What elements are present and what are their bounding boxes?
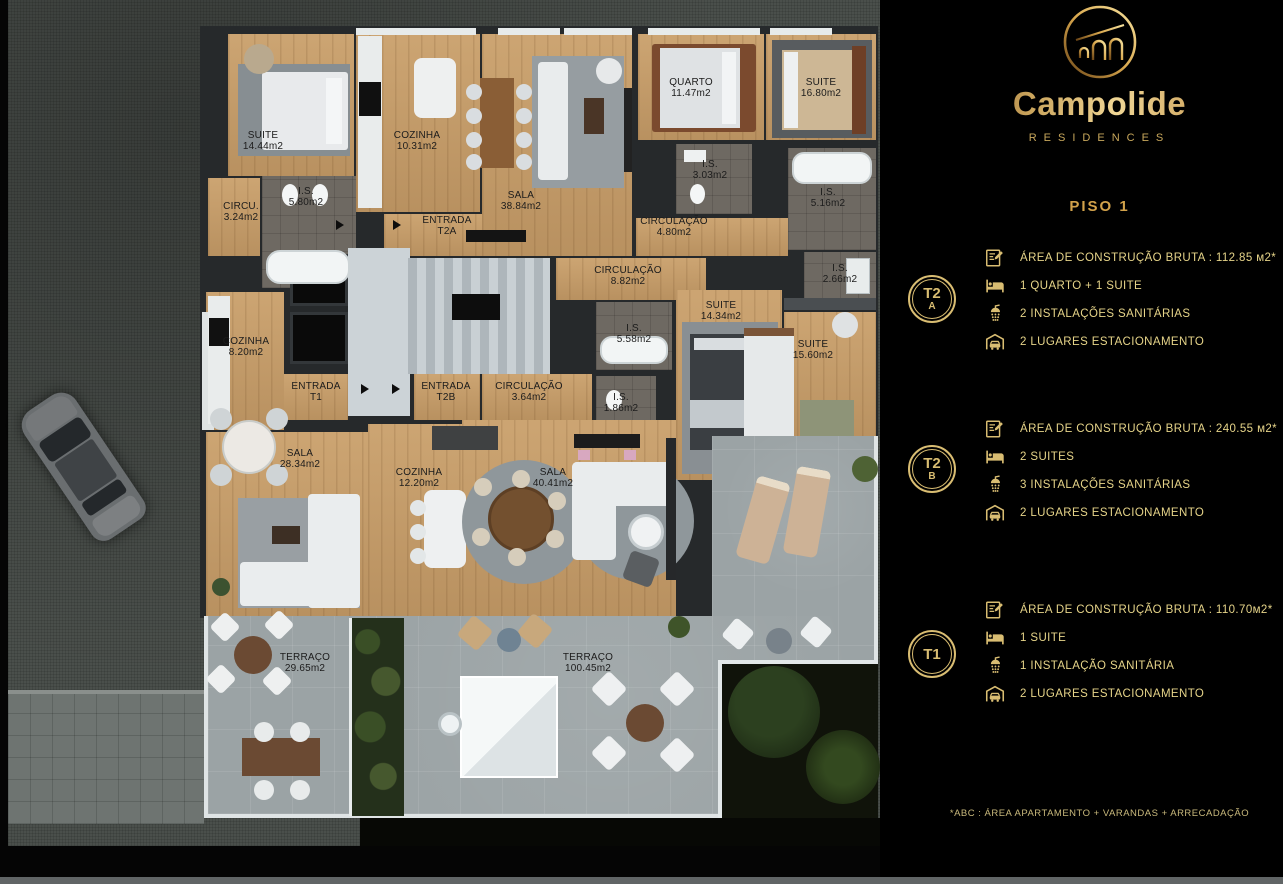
room-label: I.S.5.58m2 (617, 323, 652, 345)
unit-badge-t2b: T2 B (908, 445, 956, 493)
spec-parking: 2 LUGARES ESTACIONAMENTO (1020, 336, 1204, 348)
bed-icon (984, 275, 1006, 297)
kitchen-counter (358, 36, 382, 208)
hedge (352, 618, 404, 816)
garage-icon (984, 502, 1006, 524)
room-label: ENTRADAT2A (422, 215, 471, 237)
room-label: CIRCULAÇÃO8.82m2 (594, 265, 662, 287)
shower-icon (984, 474, 1006, 496)
unit-block-t2b: T2 B ÁREA DE CONSTRUÇÃO BRUTA : 240.55 м… (902, 415, 1278, 535)
chair (474, 478, 492, 496)
room-label: I.S.3.03m2 (693, 159, 728, 181)
spec-area: ÁREA DE CONSTRUÇÃO BRUTA : 110.70м2* (1020, 604, 1273, 616)
door-arrow (336, 220, 344, 230)
chair (210, 464, 232, 486)
kitchen-counter (432, 426, 498, 450)
room-label: SUITE14.44m2 (243, 130, 283, 152)
badge-bottom-label: B (928, 472, 935, 482)
sofa (572, 462, 616, 560)
page: SUITE14.44m2COZINHA10.31m2SALA38.84m2CIR… (0, 0, 1283, 884)
terrace-chair (254, 722, 274, 742)
room-label: I.S.5.16m2 (811, 187, 846, 209)
floorplan-render: SUITE14.44m2COZINHA10.31m2SALA38.84m2CIR… (0, 0, 880, 884)
terrace-table (242, 738, 320, 776)
floor-title: PISO 1 (926, 198, 1273, 215)
room-label: COZINHA12.20m2 (396, 467, 442, 489)
chair (466, 132, 482, 148)
room-label: SUITE16.80m2 (801, 77, 841, 99)
room-label: ENTRADAT2B (421, 381, 470, 403)
elevator-shaft (290, 312, 348, 364)
room-label: CIRCU.3.24m2 (223, 201, 259, 223)
floorplan-icon (984, 599, 1006, 621)
bathtub (266, 250, 350, 284)
chair (508, 548, 526, 566)
room-label: ENTRADAT1 (291, 381, 340, 403)
room-label: SALA28.34m2 (280, 448, 320, 470)
sofa (538, 62, 568, 180)
terrace-table-round (234, 636, 272, 674)
rug (800, 400, 854, 436)
bed-pillows (784, 52, 798, 128)
floorplan-icon (984, 247, 1006, 269)
unit-badge-t1: T1 (908, 630, 956, 678)
terrace-chair (290, 780, 310, 800)
parapet (874, 616, 878, 664)
shower-icon (984, 655, 1006, 677)
chair (466, 84, 482, 100)
armchair (596, 58, 622, 84)
chair (512, 470, 530, 488)
plant (212, 578, 230, 596)
armchair (832, 312, 858, 338)
dining-table-round (488, 486, 554, 552)
badge-top-label: T2 (923, 456, 941, 471)
spec-area: ÁREA DE CONSTRUÇÃO BRUTA : 240.55 м2* (1020, 423, 1277, 435)
garage-icon (984, 683, 1006, 705)
spec-parking: 2 LUGARES ESTACIONAMENTO (1020, 507, 1204, 519)
stool (410, 524, 426, 540)
brand-subtitle: RESIDENCES (926, 132, 1273, 144)
room-label: QUARTO11.47m2 (669, 77, 713, 99)
chair (466, 154, 482, 170)
terrace-table-round (497, 628, 521, 652)
sideboard (666, 438, 676, 580)
chair (472, 528, 490, 546)
spec-bathrooms: 2 INSTALAÇÕES SANITÁRIAS (1020, 308, 1190, 320)
balcony-strip (770, 28, 832, 35)
stool (410, 548, 426, 564)
balcony-strip (498, 28, 560, 35)
chair (546, 530, 564, 548)
brand-logo (926, 2, 1273, 82)
balcony-strip (564, 28, 632, 35)
room-label: COZINHA10.31m2 (394, 130, 440, 152)
balcony-strip (648, 28, 760, 35)
palm-tree (806, 730, 880, 804)
toilet (690, 184, 705, 204)
unit-badge-t2a: T2 A (908, 275, 956, 323)
room-label: I.S.2.66m2 (823, 263, 858, 285)
bed-icon (984, 446, 1006, 468)
footnote: *ABC : ÁREA APARTAMENTO + VARANDAS + ARR… (926, 808, 1273, 819)
bottom-border-strip (0, 877, 1283, 884)
spec-area: ÁREA DE CONSTRUÇÃO BRUTA : 112.85 м2* (1020, 252, 1276, 264)
parapet (349, 618, 352, 816)
console (574, 434, 640, 448)
coffee-table-round (628, 514, 664, 550)
coffee-table (584, 98, 604, 134)
wardrobe (784, 298, 876, 310)
chair (516, 154, 532, 170)
chair (516, 108, 532, 124)
spec-bathrooms: 1 INSTALAÇÃO SANITÁRIA (1020, 660, 1174, 672)
stool (410, 500, 426, 516)
tree (728, 666, 820, 758)
room-label: COZINHA8.20m2 (223, 336, 269, 358)
spec-bathrooms: 3 INSTALAÇÕES SANITÁRIAS (1020, 479, 1190, 491)
chair (548, 492, 566, 510)
room-label: TERRAÇO29.65m2 (280, 652, 330, 674)
spec-bedrooms: 1 QUARTO + 1 SUITE (1020, 280, 1142, 292)
room-label: SALA40.41m2 (533, 467, 573, 489)
unit-block-t1: T1 ÁREA DE CONSTRUÇÃO BRUTA : 110.70м2* … (902, 596, 1278, 716)
spec-bedrooms: 2 SUITES (1020, 451, 1074, 463)
garage-icon (984, 331, 1006, 353)
balcony-strip (356, 28, 476, 35)
badge-bottom-label: A (928, 302, 935, 312)
terrace-chair (254, 780, 274, 800)
room-label: CIRCULAÇÃO3.64m2 (495, 381, 563, 403)
room-label: SUITE14.34m2 (701, 300, 741, 322)
chair (516, 132, 532, 148)
stair-landing (452, 294, 500, 320)
plant (852, 456, 878, 482)
tv-sideboard (624, 88, 632, 172)
door-arrow (392, 384, 400, 394)
aqueduct-logo-icon (1060, 2, 1140, 82)
chair (624, 450, 636, 460)
bed-pillows (722, 52, 736, 124)
room-label: I.S.5.80m2 (289, 186, 324, 208)
dining-table (480, 78, 514, 168)
chair (266, 408, 288, 430)
room-label: TERRAÇO100.45m2 (563, 652, 613, 674)
cooktop (359, 82, 381, 116)
plant (668, 616, 690, 638)
shower-icon (984, 303, 1006, 325)
coffee-table (272, 526, 300, 544)
sofa (240, 562, 360, 606)
hall-console (466, 230, 526, 242)
kitchen-counter (208, 296, 230, 424)
room-label: SALA38.84m2 (501, 190, 541, 212)
headboard (852, 46, 866, 134)
lobby-corridor (348, 248, 410, 416)
dining-table-round (222, 420, 276, 474)
bed (744, 332, 794, 442)
bathtub (792, 152, 872, 184)
spec-parking: 2 LUGARES ESTACIONAMENTO (1020, 688, 1204, 700)
pergola (460, 676, 558, 778)
chair (210, 408, 232, 430)
bed-pillows (326, 78, 342, 144)
kitchen-island (414, 58, 456, 118)
door-arrow (393, 220, 401, 230)
door-arrow (361, 384, 369, 394)
unit-block-t2a: T2 A ÁREA DE CONSTRUÇÃO BRUTA : 112.85 м… (902, 244, 1278, 364)
badge-top-label: T2 (923, 286, 941, 301)
room-label: I.S.1.86m2 (604, 392, 639, 414)
grass-strip (360, 818, 880, 846)
info-panel: Campolide RESIDENCES PISO 1 T2 A ÁREA DE… (880, 0, 1283, 884)
bed-icon (984, 627, 1006, 649)
headboard (744, 328, 794, 336)
terrace-table-round (626, 704, 664, 742)
chair (466, 108, 482, 124)
brand-name: Campolide (926, 85, 1273, 123)
room-label: SUITE15.60m2 (793, 339, 833, 361)
badge-top-label: T1 (923, 647, 941, 662)
chair (578, 450, 590, 460)
chair (516, 84, 532, 100)
kitchen-island (424, 490, 466, 568)
terrace-table-round (766, 628, 792, 654)
room-label: CIRCULAÇÃO4.80m2 (640, 216, 708, 238)
spec-bedrooms: 1 SUITE (1020, 632, 1066, 644)
sidewalk (8, 690, 204, 824)
fountain (438, 712, 462, 736)
floorplan-icon (984, 418, 1006, 440)
armchair (244, 44, 274, 74)
terrace-chair (290, 722, 310, 742)
